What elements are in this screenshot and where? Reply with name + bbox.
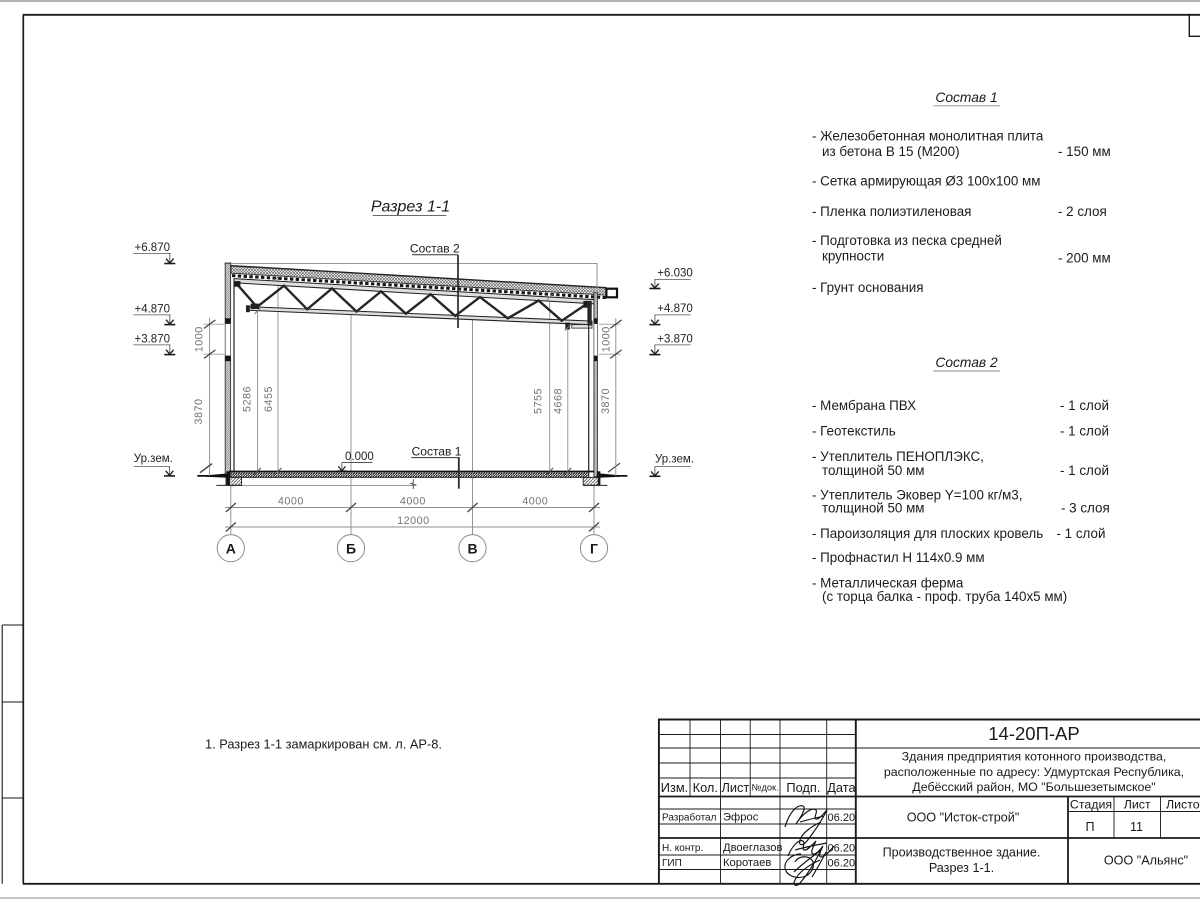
svg-text:Б: Б: [346, 540, 356, 556]
svg-text:В: В: [467, 540, 477, 556]
svg-text:1000: 1000: [194, 326, 206, 352]
svg-text:+6.030: +6.030: [657, 267, 693, 279]
svg-text:толщиной 50 мм: толщиной 50 мм: [822, 501, 925, 516]
svg-text:Разрез 1-1.: Разрез 1-1.: [929, 861, 994, 875]
svg-text:Разрез 1-1: Разрез 1-1: [371, 199, 450, 216]
svg-text:Лист: Лист: [1124, 798, 1151, 812]
svg-text:4000: 4000: [522, 496, 548, 508]
svg-text:Состав 2: Состав 2: [935, 355, 998, 370]
svg-text:- 1 слой: - 1 слой: [1060, 463, 1109, 478]
svg-text:Двоеглазов: Двоеглазов: [723, 842, 783, 854]
svg-text:- Грунт основания: - Грунт основания: [812, 280, 923, 295]
svg-text:1000: 1000: [601, 326, 613, 352]
svg-text:ГИП: ГИП: [662, 858, 682, 869]
svg-text:Ур.зем.: Ур.зем.: [134, 453, 173, 465]
svg-text:- 1 слой: - 1 слой: [1060, 398, 1109, 413]
svg-text:Эфрос: Эфрос: [723, 812, 759, 824]
svg-text:- Геотекстиль: - Геотекстиль: [812, 424, 896, 439]
svg-text:Г: Г: [590, 540, 598, 556]
svg-text:Состав 1: Состав 1: [412, 444, 462, 458]
svg-text:- Пленка полиэтиленовая: - Пленка полиэтиленовая: [812, 204, 971, 219]
svg-text:Лист: Лист: [721, 780, 749, 795]
svg-text:- Подготовка из песка средней: - Подготовка из песка средней: [812, 233, 1002, 248]
svg-text:Дебёсский район, МО "Большезет: Дебёсский район, МО "Большезетымское": [912, 780, 1155, 794]
svg-text:5755: 5755: [533, 388, 545, 414]
svg-text:12000: 12000: [397, 515, 430, 527]
svg-text:5286: 5286: [242, 386, 254, 412]
svg-text:06.20: 06.20: [828, 857, 856, 869]
svg-text:6455: 6455: [263, 386, 275, 412]
svg-text:- Пароизоляция для плоских кро: - Пароизоляция для плоских кровель: [812, 526, 1043, 541]
svg-text:Здания предприятия котонного п: Здания предприятия котонного производств…: [902, 750, 1167, 764]
svg-text:- 3 слоя: - 3 слоя: [1061, 501, 1110, 516]
svg-text:Разработал: Разработал: [662, 812, 717, 824]
svg-text:- Железобетонная монолитная п: - Железобетонная монолитная плита: [812, 128, 1044, 143]
svg-text:крупности: крупности: [822, 249, 884, 264]
svg-text:- 2 слоя: - 2 слоя: [1058, 204, 1107, 219]
svg-text:- Утеплитель ПЕНОПЛЭКС,: - Утеплитель ПЕНОПЛЭКС,: [812, 449, 984, 464]
svg-text:+6.870: +6.870: [135, 242, 171, 254]
svg-text:1. Разрез 1-1 замаркирован см.: 1. Разрез 1-1 замаркирован см. л. АР-8.: [205, 737, 442, 752]
svg-text:+4.870: +4.870: [657, 303, 693, 315]
svg-text:Коротаев: Коротаев: [723, 857, 771, 869]
svg-text:из бетона В 15 (М200): из бетона В 15 (М200): [822, 144, 960, 159]
svg-text:- Сетка армирующая Ø3 100х100: - Сетка армирующая Ø3 100х100 мм: [812, 174, 1040, 189]
svg-text:4000: 4000: [278, 496, 304, 508]
svg-text:Дата: Дата: [827, 780, 856, 795]
svg-text:П: П: [1085, 820, 1094, 834]
svg-text:А: А: [226, 540, 236, 556]
svg-text:Состав 2: Состав 2: [410, 241, 460, 255]
svg-text:11: 11: [1130, 820, 1143, 834]
svg-text:- 1 слой: - 1 слой: [1060, 424, 1109, 439]
svg-text:3870: 3870: [193, 398, 205, 424]
svg-text:Кол.: Кол.: [693, 780, 718, 795]
svg-text:+3.870: +3.870: [657, 333, 693, 345]
svg-text:+3.870: +3.870: [135, 334, 171, 346]
svg-text:- Мембрана ПВХ: - Мембрана ПВХ: [812, 398, 916, 413]
svg-text:№док.: №док.: [751, 783, 778, 793]
svg-text:4000: 4000: [400, 496, 426, 508]
svg-text:ООО "Исток-строй": ООО "Исток-строй": [907, 811, 1020, 825]
svg-text:Состав 1: Состав 1: [935, 90, 997, 105]
svg-text:Н. контр.: Н. контр.: [662, 843, 703, 854]
svg-text:- 200 мм: - 200 мм: [1058, 250, 1111, 265]
svg-text:(с торца балка - проф. труба 1: (с торца балка - проф. труба 140х5 мм): [822, 589, 1067, 604]
svg-text:- 1 слой: - 1 слой: [1057, 526, 1106, 541]
svg-text:Подп.: Подп.: [786, 780, 820, 795]
svg-text:Изм.: Изм.: [661, 780, 688, 795]
svg-text:Ур.зем.: Ур.зем.: [655, 453, 694, 465]
svg-text:- Профнастил Н 114х0.9 мм: - Профнастил Н 114х0.9 мм: [812, 550, 985, 565]
svg-text:14-20П-АР: 14-20П-АР: [988, 723, 1079, 744]
svg-text:Листов: Листов: [1166, 798, 1200, 812]
svg-text:06.20: 06.20: [828, 812, 856, 824]
svg-text:4668: 4668: [552, 388, 564, 414]
svg-text:Производственное здание.: Производственное здание.: [883, 846, 1041, 860]
svg-text:ООО "Альянс": ООО "Альянс": [1104, 854, 1188, 868]
svg-text:3870: 3870: [600, 388, 612, 414]
svg-text:- 150 мм: - 150 мм: [1058, 144, 1111, 159]
svg-text:толщиной 50 мм: толщиной 50 мм: [822, 463, 925, 478]
svg-text:+4.870: +4.870: [135, 304, 171, 316]
svg-text:0.000: 0.000: [345, 451, 374, 463]
svg-text:расположенные по адресу: Удмур: расположенные по адресу: Удмуртская Респ…: [884, 765, 1184, 779]
svg-text:Стадия: Стадия: [1070, 798, 1112, 812]
